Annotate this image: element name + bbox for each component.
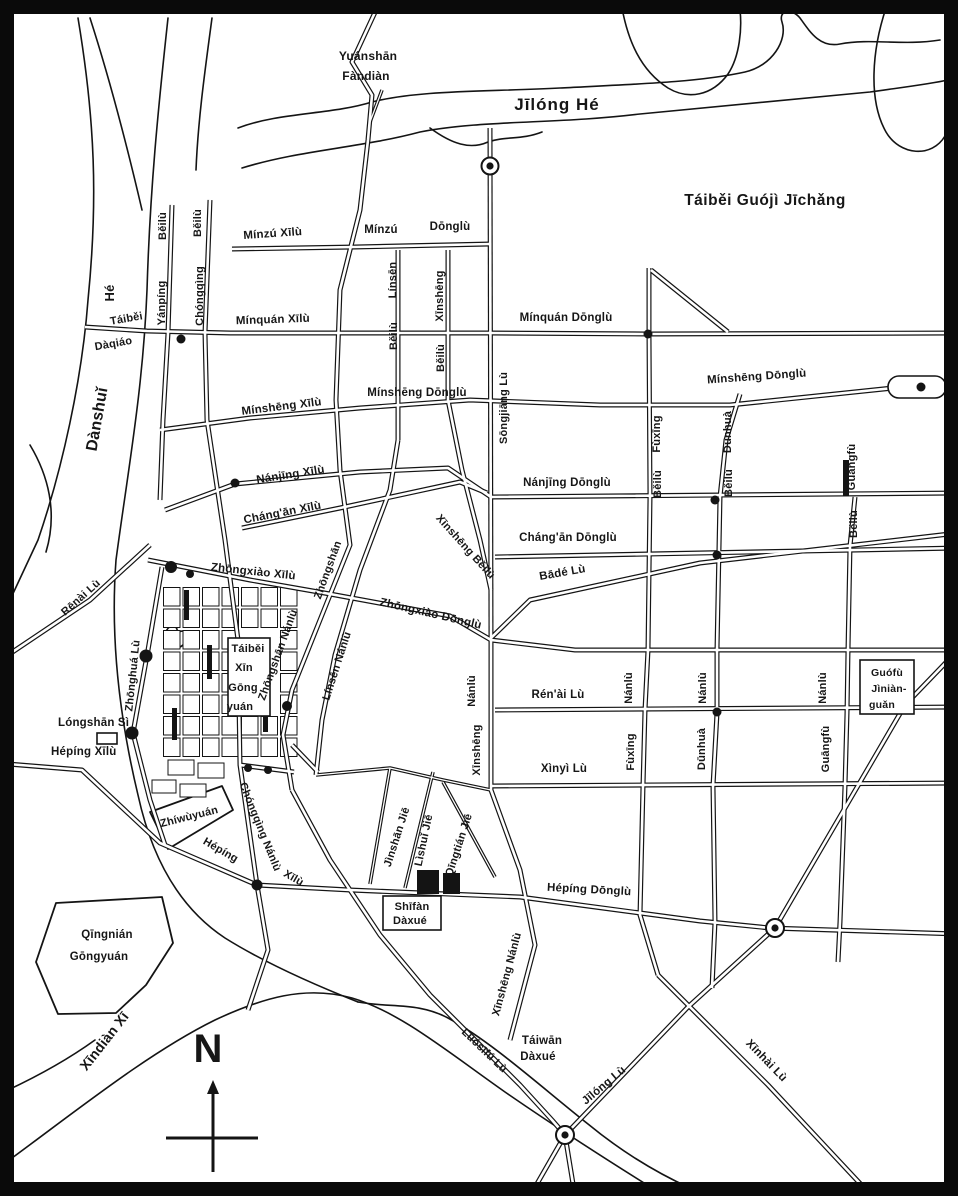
city-block [164,652,181,671]
city-block [164,695,181,714]
map-label: Hépíng Xīlù [51,746,116,758]
city-block [152,780,176,793]
map-label: Gōngyuán [70,951,128,963]
city-block [261,609,278,628]
road-songjiang-lu-inner [490,128,491,640]
taipei-street-map: YuánshānFàndiànJīlóng HéTáiběi Guójì Jīc… [0,0,958,1196]
junction-dot [644,330,653,339]
map-label: Nánjīng Dōnglù [523,477,611,489]
city-block [242,588,259,607]
city-block [183,738,200,757]
city-block [168,760,194,775]
map-label: Fùxīng [625,733,637,770]
map-label: guǎn [869,699,895,711]
map-label: Nánlù [697,672,709,704]
city-block [183,674,200,693]
city-block-filled [184,590,189,620]
city-block [242,609,259,628]
map-background [0,0,958,1196]
map-label: Dàxué [393,915,427,927]
map-label: Guāngfù [846,444,858,491]
map-label: Gōng [228,682,258,694]
map-label: Táiběi Guójì Jīchǎng [684,192,846,209]
junction-dot [282,701,292,711]
map-label: Guófù [871,667,903,679]
city-block [222,717,239,736]
city-block [242,738,259,757]
roundabout-dot [561,1131,568,1138]
map-label: Dūnhuà [696,727,708,770]
map-label: Běilù [157,212,169,240]
map-label: Fùxīng [651,415,663,452]
map-label: Běilù [848,510,860,538]
map-svg: YuánshānFàndiànJīlóng HéTáiběi Guójì Jīc… [0,0,958,1196]
map-label: Yuánshān [339,49,397,63]
map-label: Běilù [652,470,664,498]
city-block-filled [172,708,177,740]
map-label: Shīfàn [395,901,430,913]
junction-dot [252,880,263,891]
city-block [183,652,200,671]
roundabout-dot [486,162,493,169]
junction-dot [186,570,194,578]
city-block [222,738,239,757]
city-block [164,631,181,650]
map-label: Xìnyì Lù [541,763,587,775]
map-label: Mínshēng Dōnglù [367,387,466,399]
city-block [261,588,278,607]
city-block [203,609,220,628]
map-label: Dàxué [520,1051,556,1063]
city-block [203,738,220,757]
city-block [198,763,224,778]
map-label: Qīngnián [81,929,132,941]
city-block [164,609,181,628]
city-block [203,717,220,736]
junction-dot [264,766,272,774]
map-label: Mínquán Dōnglù [520,312,613,324]
map-label: yuán [227,701,254,713]
city-block [180,784,206,797]
map-label: Běilù [192,209,204,237]
map-label: Nánlù [817,672,829,704]
city-block [183,695,200,714]
city-block [164,717,181,736]
map-label: Táiběi [232,643,265,655]
map-label: Běilù [723,469,735,497]
map-label: Dūnhuà [722,410,734,453]
city-block [164,738,181,757]
map-label: Xīnshēng [471,724,483,775]
map-label: Jìniàn- [871,683,907,695]
map-label: Sōngjiāng Lù [498,372,510,444]
map-label: Fàndiàn [342,69,389,83]
city-block [203,588,220,607]
map-label: Běilù [388,322,400,350]
junction-dot [244,764,252,772]
map-label: Chóngqìng [194,266,206,326]
city-block [242,717,259,736]
map-label: Lóngshān Sì [58,717,129,729]
map-label: Rén'ài Lù [531,689,584,701]
map-label: Jīlóng Hé [514,95,600,114]
junction-dot [165,561,177,573]
map-label: Nánlù [466,675,478,707]
map-label: Xīnshēng [434,270,446,321]
map-label: Nánlù [623,672,635,704]
map-label: Běilù [435,344,447,372]
city-block [164,588,181,607]
city-block [183,717,200,736]
map-label: Yánpíng [156,281,168,326]
map-label: Guāngfù [820,726,832,773]
city-block [203,695,220,714]
map-label: Línsēn [387,262,399,299]
junction-dot [713,551,722,560]
map-frame-right-band [944,128,958,728]
building-shida-1 [417,870,439,894]
longshan-si-symbol [97,733,117,744]
roundabout-dot [771,924,778,931]
map-label: Dōnglù [430,221,471,233]
junction-dot [713,708,722,717]
map-label: Táiwān [522,1035,562,1047]
city-block [261,738,278,757]
map-label: Cháng'ān Dōnglù [519,532,617,544]
junction-dot [711,496,720,505]
city-block [164,674,181,693]
junction-dot [917,383,926,392]
city-block-filled [207,645,212,679]
junction-dot [177,335,186,344]
compass-n-letter: N [194,1027,223,1071]
map-label: Xīn [235,662,253,674]
map-label: Hé [102,284,117,301]
map-label: Mínzú [364,224,398,236]
junction-dot [231,479,240,488]
city-block [183,631,200,650]
